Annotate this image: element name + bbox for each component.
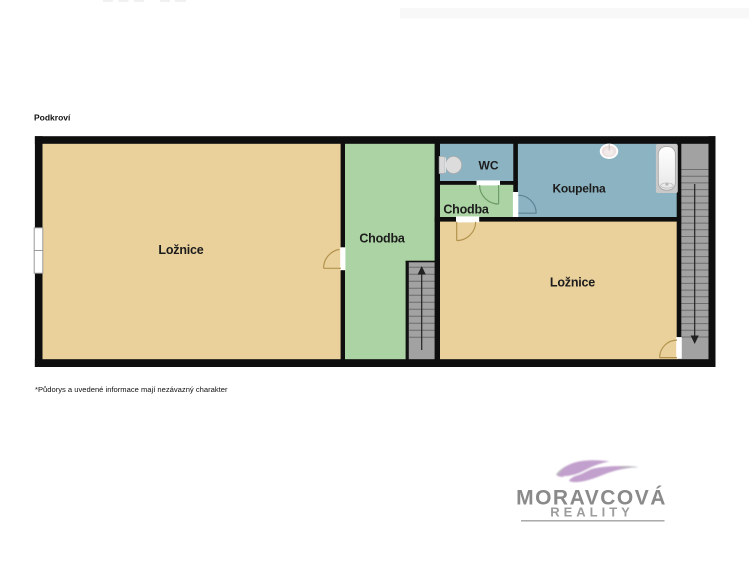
svg-text:Ložnice: Ložnice bbox=[550, 276, 595, 290]
svg-text:Chodba: Chodba bbox=[359, 232, 406, 246]
svg-text:WC: WC bbox=[479, 159, 499, 173]
svg-text:REALITY: REALITY bbox=[550, 505, 634, 520]
svg-text:Podkroví: Podkroví bbox=[34, 113, 71, 123]
svg-text:Chodba: Chodba bbox=[443, 203, 490, 217]
svg-text:*Půdorys a uvedené informace m: *Půdorys a uvedené informace mají nezáva… bbox=[35, 385, 228, 394]
svg-text:Ložnice: Ložnice bbox=[158, 243, 203, 257]
svg-text:Koupelna: Koupelna bbox=[552, 182, 606, 196]
